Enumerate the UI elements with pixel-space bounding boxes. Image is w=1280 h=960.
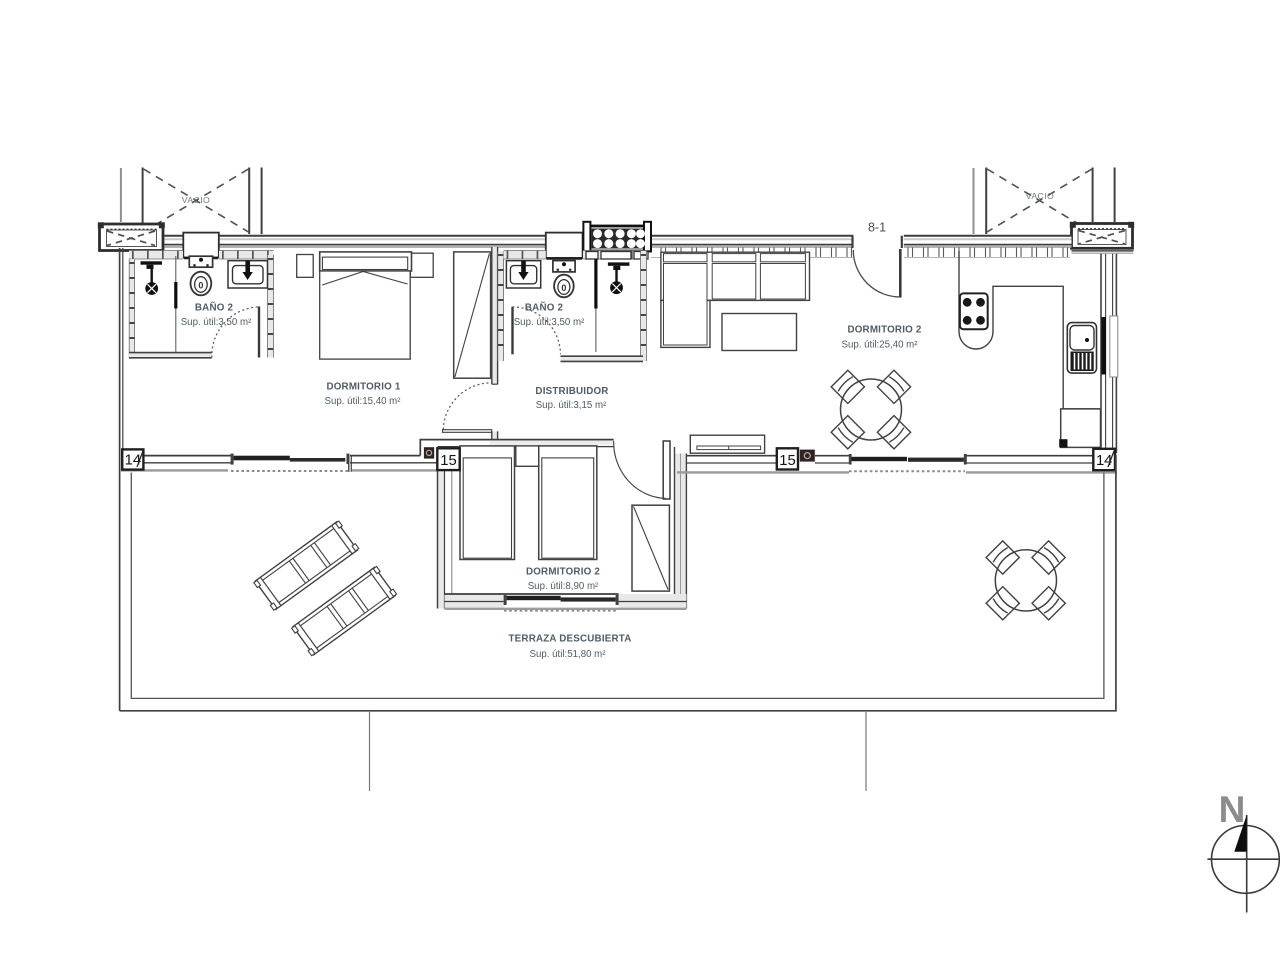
- svg-text:DORMITORIO 2: DORMITORIO 2: [847, 325, 921, 336]
- svg-text:8-1: 8-1: [868, 221, 886, 235]
- svg-text:15: 15: [440, 453, 456, 469]
- svg-text:Sup. útil:3,50 m²: Sup. útil:3,50 m²: [514, 317, 585, 328]
- svg-text:Sup. útil:3,15 m²: Sup. útil:3,15 m²: [536, 400, 607, 411]
- svg-text:15: 15: [779, 453, 795, 469]
- svg-text:TERRAZA DESCUBIERTA: TERRAZA DESCUBIERTA: [509, 634, 632, 645]
- svg-text:DORMITORIO 2: DORMITORIO 2: [526, 567, 600, 578]
- svg-text:BAÑO 2: BAÑO 2: [195, 303, 234, 314]
- svg-text:BAÑO 2: BAÑO 2: [525, 303, 564, 314]
- svg-text:DISTRIBUIDOR: DISTRIBUIDOR: [535, 386, 608, 397]
- svg-text:Sup. útil:25,40 m²: Sup. útil:25,40 m²: [842, 340, 919, 351]
- svg-text:Sup. útil:3,50 m²: Sup. útil:3,50 m²: [181, 317, 252, 328]
- svg-text:Sup. útil:51,80 m²: Sup. útil:51,80 m²: [530, 649, 607, 660]
- svg-text:Sup. útil:8,90 m²: Sup. útil:8,90 m²: [528, 581, 599, 592]
- svg-text:N: N: [1219, 789, 1246, 830]
- svg-text:VACIO: VACIO: [1026, 191, 1054, 201]
- svg-text:0: 0: [561, 283, 566, 293]
- svg-text:DORMITORIO 1: DORMITORIO 1: [326, 382, 400, 393]
- svg-text:14: 14: [125, 453, 141, 469]
- svg-text:0: 0: [198, 281, 203, 291]
- svg-text:VACIO: VACIO: [182, 195, 210, 205]
- svg-text:Sup. útil:15,40 m²: Sup. útil:15,40 m²: [325, 396, 402, 407]
